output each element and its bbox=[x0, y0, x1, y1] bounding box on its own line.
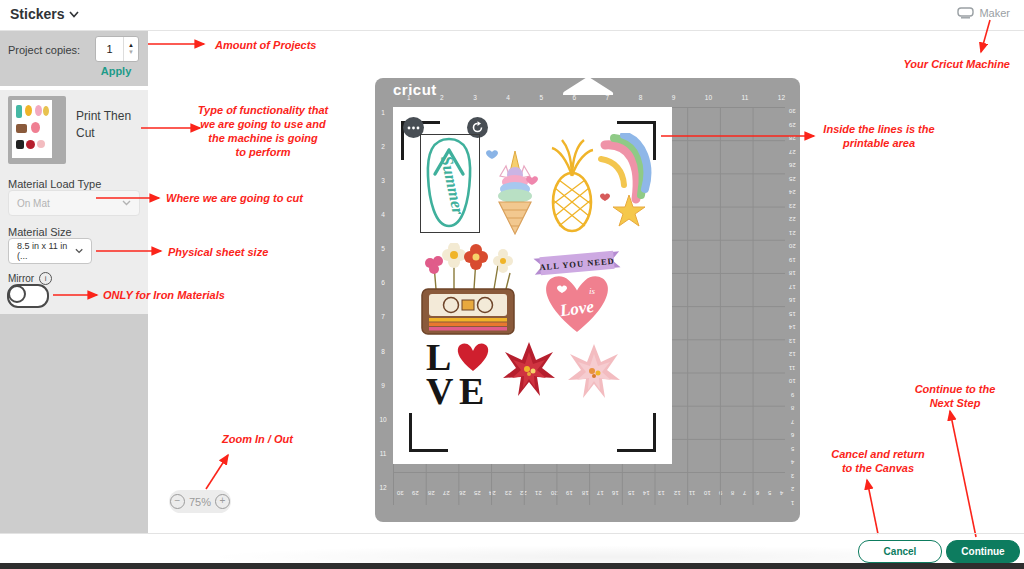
ruler-number: 5 bbox=[791, 446, 794, 452]
annotation-where-cut: Where we are going to cut bbox=[166, 191, 303, 205]
ruler-number: 8 bbox=[639, 94, 643, 101]
mirror-toggle[interactable] bbox=[7, 284, 49, 308]
cancel-button[interactable]: Cancel bbox=[858, 540, 942, 563]
ruler-number: 10 bbox=[705, 94, 712, 101]
ruler-number: 1 bbox=[381, 109, 385, 116]
material-size-value: 8.5 in x 11 in (... bbox=[17, 241, 75, 261]
cutting-mat: cricut 123456789101112 123456789101112 3… bbox=[375, 78, 800, 522]
annotation-line: Next Step bbox=[912, 396, 998, 410]
annotation-zoom: Zoom In / Out bbox=[222, 432, 293, 446]
annotation-line: Zoom In / Out bbox=[222, 432, 293, 446]
footer-divider bbox=[0, 533, 1024, 534]
project-title-dropdown[interactable]: Stickers bbox=[10, 6, 79, 22]
mirror-label: Mirror bbox=[8, 273, 34, 284]
annotation-sheet-size: Physical sheet size bbox=[168, 245, 268, 259]
bottom-bar bbox=[0, 563, 1024, 569]
chevron-down-icon bbox=[122, 200, 131, 206]
flipflop-text: Summer bbox=[437, 154, 468, 217]
ruler-number: 6 bbox=[791, 432, 794, 438]
chevron-down-icon bbox=[69, 11, 79, 18]
arrow-cancel bbox=[867, 480, 878, 534]
annotation-cancel: Cancel and returnto the Canvas bbox=[817, 447, 939, 475]
chevron-down-icon bbox=[75, 248, 83, 254]
ruler-number: 6 bbox=[572, 94, 576, 101]
love-e: E bbox=[459, 370, 484, 408]
annotation-line: we are going to use and bbox=[193, 117, 333, 131]
ruler-number: 23 bbox=[789, 203, 796, 209]
ruler-number: 22 bbox=[789, 216, 796, 222]
thumb-blob bbox=[37, 140, 45, 148]
ruler-number: 9 bbox=[672, 94, 676, 101]
toggle-knob bbox=[8, 285, 26, 303]
ruler-number: 24 bbox=[789, 189, 796, 195]
heart-is-text: is bbox=[589, 286, 596, 296]
daisies bbox=[425, 243, 513, 274]
ruler-number: 10 bbox=[379, 416, 386, 423]
ruler-number: 12 bbox=[789, 351, 796, 357]
ruler-number: 3 bbox=[473, 94, 477, 101]
ruler-number: 20 bbox=[789, 243, 796, 249]
annotation-line: Physical sheet size bbox=[168, 245, 268, 259]
ruler-number: 27 bbox=[789, 149, 796, 155]
mode-label: Print Then Cut bbox=[76, 108, 138, 142]
mode-label-line2: Cut bbox=[76, 125, 138, 142]
mat-thumbnail[interactable] bbox=[8, 96, 66, 164]
ruler-right-cm: 3029282726252423222120191817161514131211… bbox=[787, 108, 798, 506]
ruler-number: 8 bbox=[791, 405, 794, 411]
ruler-number: 9 bbox=[791, 392, 794, 398]
ruler-number: 3 bbox=[381, 177, 385, 184]
annotation-continue: Continue to theNext Step bbox=[912, 382, 998, 410]
ruler-number: 28 bbox=[789, 135, 796, 141]
ruler-number: 2 bbox=[791, 486, 794, 492]
ruler-number: 10 bbox=[789, 378, 796, 384]
thumb-blob bbox=[16, 140, 24, 149]
ruler-number: 4 bbox=[506, 94, 510, 101]
annotation-line: Continue to the bbox=[912, 382, 998, 396]
sticker-red-poinsettia[interactable] bbox=[502, 340, 556, 400]
ruler-number: 9 bbox=[381, 382, 385, 389]
zoom-level: 75% bbox=[189, 496, 211, 508]
ellipsis-icon bbox=[407, 126, 420, 130]
ruler-number: 7 bbox=[791, 419, 794, 425]
sticker-all-you-need-love-heart[interactable]: ALL YOU NEED is Love bbox=[532, 246, 622, 336]
ruler-number: 1 bbox=[791, 500, 794, 506]
ruler-number: 2 bbox=[440, 94, 444, 101]
sticker-pineapple[interactable] bbox=[549, 138, 595, 234]
apply-button[interactable]: Apply bbox=[95, 65, 137, 77]
ruler-number: 4 bbox=[791, 459, 794, 465]
thumb-blob bbox=[16, 105, 22, 118]
machine-selector[interactable]: Maker bbox=[957, 7, 1010, 19]
ruler-number: 15 bbox=[789, 311, 796, 317]
copies-value[interactable]: 1 bbox=[96, 37, 123, 61]
ruler-number: 4 bbox=[381, 211, 385, 218]
thumb-blob bbox=[31, 122, 40, 133]
ruler-number: 2 bbox=[381, 143, 385, 150]
love-v: V bbox=[426, 370, 454, 408]
annotation-machine: Your Cricut Machine bbox=[880, 57, 1010, 71]
ruler-number: 3 bbox=[791, 473, 794, 479]
thumb-blob bbox=[35, 105, 42, 116]
ruler-number: 16 bbox=[789, 297, 796, 303]
annotation-line: ONLY for Iron Materials bbox=[103, 288, 225, 302]
thumb-blob bbox=[25, 105, 32, 116]
ruler-number: 14 bbox=[789, 324, 796, 330]
stepper-up-icon[interactable]: ▲ bbox=[128, 42, 134, 49]
ruler-number: 21 bbox=[789, 230, 796, 236]
annotation-line: Inside the lines is the bbox=[820, 122, 938, 136]
top-bar: Stickers Maker bbox=[0, 0, 1024, 31]
registration-mark-bottom-right bbox=[617, 413, 656, 452]
ruler-number: 1 bbox=[407, 94, 411, 101]
mode-label-line1: Print Then bbox=[76, 108, 138, 125]
sticker-pink-poinsettia[interactable] bbox=[566, 343, 622, 400]
material-load-value: On Mat bbox=[17, 198, 50, 209]
annotation-line: Type of functionality that bbox=[193, 103, 333, 117]
copies-stepper: ▲ ▼ bbox=[123, 37, 138, 61]
registration-mark-bottom-left bbox=[409, 413, 448, 452]
thumb-blob bbox=[26, 140, 35, 149]
sticker-love-letter-block[interactable]: L V E bbox=[424, 340, 490, 408]
machine-name: Maker bbox=[979, 7, 1010, 19]
annotation-mirror: ONLY for Iron Materials bbox=[103, 288, 225, 302]
mat-notch bbox=[562, 77, 614, 95]
ruler-number: 12 bbox=[379, 484, 386, 491]
ruler-number: 13 bbox=[789, 338, 796, 344]
arrow-continue bbox=[950, 411, 976, 537]
stepper-down-icon[interactable]: ▼ bbox=[128, 49, 134, 56]
ruler-number: 5 bbox=[539, 94, 543, 101]
annotation-function: Type of functionality thatwe are going t… bbox=[193, 103, 333, 159]
rotate-icon bbox=[471, 121, 484, 134]
ruler-number: 26 bbox=[789, 162, 796, 168]
material-size-dropdown[interactable]: 8.5 in x 11 in (... bbox=[8, 238, 92, 264]
ruler-number: 6 bbox=[381, 279, 385, 286]
ruler-top-inches: 123456789101112 bbox=[393, 94, 785, 101]
zoom-out-button[interactable]: − bbox=[170, 494, 185, 509]
sidebar-lower-panel bbox=[0, 314, 148, 533]
annotation-line: printable area bbox=[820, 136, 938, 150]
ruler-number: 11 bbox=[380, 450, 387, 457]
ruler-number: 12 bbox=[778, 94, 785, 101]
project-copies-label: Project copies: bbox=[8, 44, 80, 56]
annotation-line: Your Cricut Machine bbox=[880, 57, 1010, 71]
cricut-machine-icon bbox=[957, 7, 974, 19]
ruler-number: 17 bbox=[789, 284, 796, 290]
project-title: Stickers bbox=[10, 6, 64, 22]
ruler-number: 7 bbox=[381, 313, 385, 320]
annotation-line: the machine is going bbox=[193, 131, 333, 145]
ruler-number: 11 bbox=[789, 365, 795, 371]
annotation-amount: Amount of Projects bbox=[215, 38, 316, 52]
ruler-number: 19 bbox=[789, 257, 796, 263]
info-icon[interactable]: i bbox=[39, 272, 52, 285]
sticker-unicorn-ice-cream[interactable] bbox=[484, 148, 546, 236]
annotation-printable-area: Inside the lines is theprintable area bbox=[820, 122, 938, 150]
annotation-line: to perform bbox=[193, 145, 333, 159]
material-load-dropdown[interactable]: On Mat bbox=[8, 190, 140, 216]
zoom-in-button[interactable]: + bbox=[215, 494, 230, 509]
mat-thumbnail-paper bbox=[12, 100, 52, 158]
annotation-line: Where we are going to cut bbox=[166, 191, 303, 205]
project-copies-input[interactable]: 1 ▲ ▼ bbox=[95, 36, 139, 62]
material-size-label: Material Size bbox=[8, 226, 72, 238]
ruler-number: 18 bbox=[789, 270, 796, 276]
thumb-blob bbox=[43, 106, 49, 116]
ruler-number: 25 bbox=[789, 176, 796, 182]
ruler-number: 8 bbox=[381, 348, 385, 355]
ruler-number: 11 bbox=[742, 94, 749, 101]
prepare-settings-panel: Print Then Cut Material Load Type On Mat… bbox=[0, 90, 148, 314]
ruler-left-inches: 123456789101112 bbox=[377, 109, 389, 491]
continue-button[interactable]: Continue bbox=[946, 540, 1020, 563]
ruler-number: 29 bbox=[789, 122, 796, 128]
ruler-number: 30 bbox=[789, 108, 796, 114]
annotation-line: Amount of Projects bbox=[215, 38, 316, 52]
thumb-blob bbox=[16, 124, 27, 133]
sticker-flower-cassette[interactable] bbox=[418, 243, 518, 336]
zoom-control: − 75% + bbox=[169, 490, 231, 513]
annotation-line: to the Canvas bbox=[817, 461, 939, 475]
ruler-number: 7 bbox=[606, 94, 610, 101]
arrow-zoom bbox=[206, 455, 228, 489]
material-load-label: Material Load Type bbox=[8, 178, 101, 190]
project-copies-panel: Project copies: 1 ▲ ▼ Apply bbox=[0, 31, 148, 86]
sticker-summer-flip-flop[interactable]: Summer bbox=[422, 136, 476, 229]
annotation-line: Cancel and return bbox=[817, 447, 939, 461]
ruler-number: 5 bbox=[381, 245, 385, 252]
sticker-rainbow-shooting-star[interactable] bbox=[595, 133, 655, 235]
